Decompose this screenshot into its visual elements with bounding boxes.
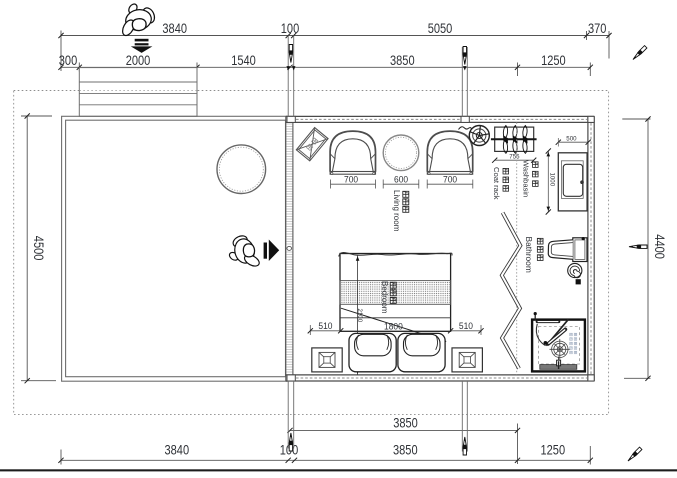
svg-text:4500: 4500 bbox=[31, 236, 47, 261]
svg-text:Washbasin: Washbasin bbox=[522, 160, 531, 197]
svg-text:100: 100 bbox=[281, 20, 300, 36]
svg-text:510: 510 bbox=[318, 321, 332, 331]
svg-text:700: 700 bbox=[443, 175, 457, 185]
svg-text:700: 700 bbox=[344, 175, 358, 185]
svg-text:755: 755 bbox=[509, 154, 519, 161]
svg-text:3850: 3850 bbox=[390, 52, 415, 68]
svg-text:3850: 3850 bbox=[393, 414, 418, 430]
svg-text:1000: 1000 bbox=[548, 173, 555, 187]
svg-text:1800: 1800 bbox=[384, 322, 403, 332]
svg-text:2000: 2000 bbox=[126, 52, 151, 68]
svg-text:370: 370 bbox=[588, 20, 607, 36]
svg-text:3840: 3840 bbox=[162, 20, 187, 36]
svg-text:300: 300 bbox=[59, 52, 78, 68]
svg-text:Coat rack: Coat rack bbox=[492, 167, 501, 200]
svg-text:2100: 2100 bbox=[356, 309, 363, 323]
svg-text:Bedroom: Bedroom bbox=[380, 281, 389, 314]
svg-text:1250: 1250 bbox=[541, 52, 566, 68]
svg-text:Bathroom: Bathroom bbox=[524, 237, 534, 273]
svg-text:3850: 3850 bbox=[393, 442, 418, 458]
svg-text:1540: 1540 bbox=[231, 52, 256, 68]
svg-text:5050: 5050 bbox=[428, 20, 453, 36]
svg-text:500: 500 bbox=[566, 136, 576, 143]
svg-text:510: 510 bbox=[459, 321, 473, 331]
svg-text:3840: 3840 bbox=[165, 442, 190, 458]
svg-text:1250: 1250 bbox=[541, 442, 566, 458]
svg-text:4400: 4400 bbox=[652, 234, 668, 259]
svg-text:600: 600 bbox=[394, 175, 408, 185]
svg-text:Living room: Living room bbox=[392, 190, 401, 232]
